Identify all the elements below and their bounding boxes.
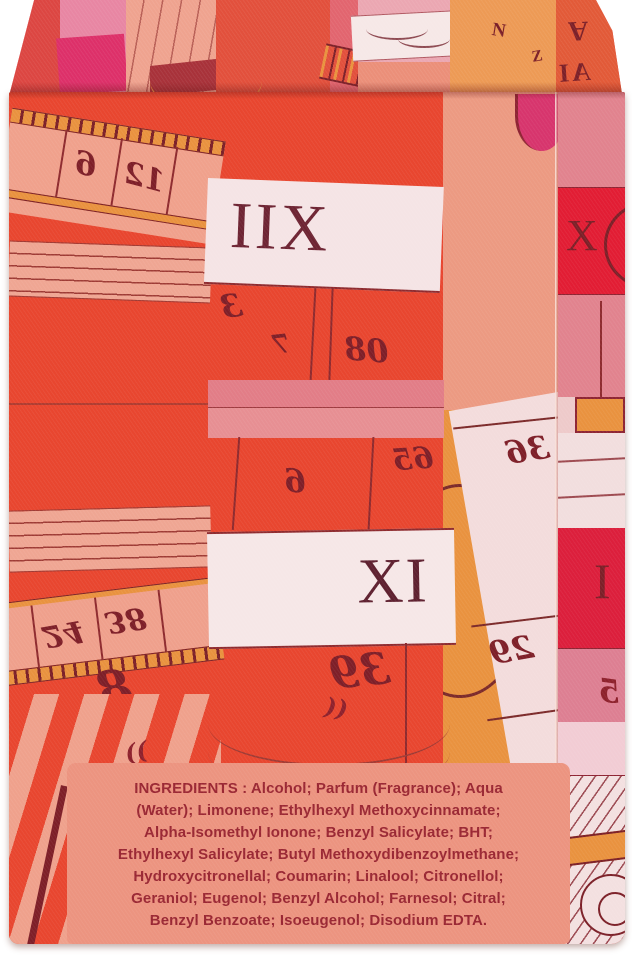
cell-line: [232, 437, 240, 530]
lid-figure-paper: [351, 10, 457, 61]
white-band-xi: XI: [207, 528, 456, 649]
cell-line: [110, 138, 123, 205]
ingredients-line: (Water); Limonene; Ethylhexyl Methoxycin…: [67, 800, 570, 822]
lid-patch-darkwedge: [150, 58, 225, 93]
tick-strip-top: [10, 108, 226, 157]
side-arc: [604, 202, 625, 288]
numeral-6-mid: 6: [282, 464, 307, 498]
box-lid: N Z A AI: [0, 0, 632, 93]
lid-ladder-ornament: [319, 43, 393, 92]
side-rose-row-5: 5: [558, 648, 625, 724]
lid-patch-orange-red: [556, 0, 632, 93]
side-pale-rows: [558, 433, 625, 528]
cell-line: [328, 288, 333, 380]
rose-band: [208, 380, 444, 438]
numeral-08: 08: [343, 332, 390, 368]
side-orange-cell: [575, 397, 625, 433]
box-body: 36 29 6 12 24 38 8: [9, 92, 625, 944]
lid-patch-vermilion: [216, 0, 330, 93]
lid-patch-red: [0, 0, 82, 93]
numeral-7: 7: [271, 331, 292, 359]
numeral-65: 65: [391, 444, 435, 477]
cell-line: [166, 147, 179, 214]
lid-patch-pink: [60, 0, 128, 93]
roman-xii-mirrored: IIX: [229, 193, 332, 263]
lid-letter-n: N: [490, 19, 507, 43]
roman-x-side: X: [566, 214, 598, 258]
lid-figure-sketch-line2: [398, 30, 450, 48]
rose-band-lower: [208, 407, 444, 438]
lid-patch-magenta: [56, 34, 128, 93]
lid-patch-striped: [126, 0, 218, 93]
numeral-24: 24: [40, 614, 86, 651]
ingredients-line: Geraniol; Eugenol; Benzyl Alcohol; Farne…: [67, 888, 570, 910]
pinstripe-band-upper: [9, 240, 212, 303]
lid-patch-orange: [450, 0, 558, 93]
cell-line: [310, 288, 317, 380]
dial-band-top: 6 12: [9, 108, 226, 245]
row-line: [558, 493, 625, 498]
roman-xi: XI: [357, 548, 430, 613]
mark-open-quotes: ((: [123, 738, 150, 766]
cells-mid-row: 6 65: [208, 437, 444, 530]
ingredients-label: INGREDIENTS : Alcohol; Parfum (Fragrance…: [67, 763, 570, 944]
ingredients-line: Hydroxycitronellal; Coumarin; Linalool; …: [67, 866, 570, 888]
side-cells-mid: [558, 293, 625, 398]
cell-line: [600, 301, 602, 397]
lid-orange-arc: [150, 48, 262, 93]
ingredients-line: Ethylhexyl Salicylate; Butyl Methoxydibe…: [67, 844, 570, 866]
numeral-29: 29: [487, 630, 536, 669]
side-red-x-cell: X: [558, 187, 625, 295]
ingredients-line: Alpha-Isomethyl Ionone; Benzyl Salicylat…: [67, 822, 570, 844]
numeral-6-top: 6: [71, 146, 100, 182]
numeral-12-top: 12: [120, 158, 168, 198]
side-curl-inner: [598, 892, 625, 926]
mark-close-quotes: )): [323, 694, 350, 722]
ingredients-line: INGREDIENTS : Alcohol; Parfum (Fragrance…: [67, 778, 570, 800]
product-photo-perfume-box: N Z A AI 36 29 6 12: [0, 0, 632, 955]
side-crimson-i-cell: I: [558, 528, 625, 648]
row-line: [558, 457, 625, 462]
white-band-xii: IIX: [204, 178, 444, 293]
thin-line: [9, 403, 209, 405]
ingredients-line: Benzyl Benzoate; Isoeugenol; Disodium ED…: [67, 910, 570, 932]
lid-figure-bottom: [358, 62, 450, 93]
lid-figure-band: [358, 0, 450, 93]
roman-i-side: I: [594, 556, 611, 606]
numeral-5-side: 5: [596, 674, 623, 709]
pinstripe-band-lower: [9, 505, 212, 572]
numeral-38: 38: [103, 601, 149, 637]
lid-figure-sketch-line: [366, 18, 428, 40]
cell-line: [368, 437, 375, 530]
side-pale-sliver: [558, 397, 575, 433]
cell-line: [55, 129, 68, 196]
lid-letters-ai: AI: [555, 57, 592, 89]
lid-letter-a-inverted: A: [567, 14, 588, 47]
numeral-36: 36: [503, 431, 552, 470]
numeral-3: 3: [218, 289, 245, 324]
lid-letter-z: Z: [531, 47, 545, 67]
cells-under-xii: 3 7 08: [208, 288, 444, 382]
